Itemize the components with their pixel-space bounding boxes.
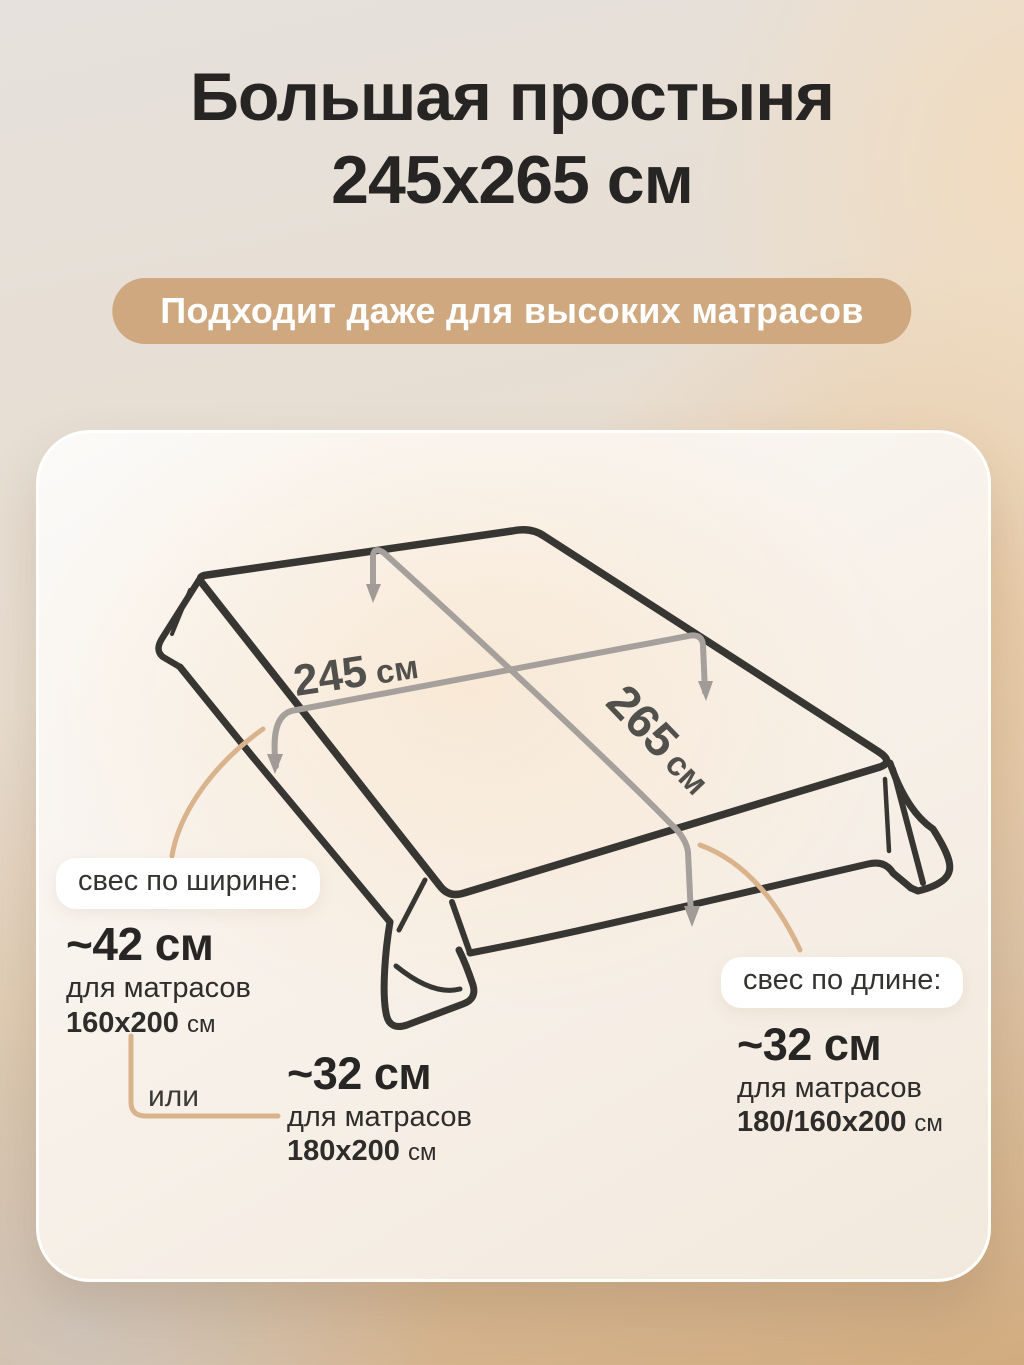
pill-width-overhang: свес по ширине: (56, 858, 320, 909)
width-overhang-alt-size: 180x200 см (287, 1136, 472, 1168)
diagram-card (36, 430, 991, 1282)
length-overhang-value: ~32 см (737, 1021, 943, 1070)
width-overhang-for: для матрасов (66, 973, 251, 1005)
infographic-page: Большая простыня 245x265 см Подходит даж… (0, 0, 1024, 1365)
width-overhang-value: ~42 см (66, 920, 251, 970)
subtitle-badge: Подходит даже для высоких матрасов (112, 278, 911, 344)
or-label: или (148, 1080, 199, 1114)
page-title: Большая простыня 245x265 см (0, 56, 1024, 222)
mattress-size-unit: см (408, 1139, 437, 1166)
mattress-size: 160x200 (66, 1007, 179, 1039)
width-overhang-alt-for: для матрасов (287, 1102, 472, 1134)
mattress-size-unit: см (914, 1110, 943, 1137)
width-overhang-size: 160x200 см (66, 1008, 251, 1040)
length-overhang-size: 180/160x200 см (737, 1107, 943, 1139)
length-overhang-for: для матрасов (737, 1073, 943, 1105)
title-line-1: Большая простыня (0, 56, 1024, 139)
title-line-2: 245x265 см (0, 139, 1024, 222)
mattress-size: 180x200 (287, 1135, 400, 1167)
mattress-size: 180/160x200 (737, 1106, 906, 1138)
width-overhang-alt-block: ~32 см для матрасов 180x200 см (287, 1050, 472, 1168)
width-overhang-block: ~42 см для матрасов 160x200 см (66, 920, 251, 1039)
width-overhang-alt-value: ~32 см (287, 1050, 472, 1099)
length-overhang-block: ~32 см для матрасов 180/160x200 см (737, 1021, 943, 1139)
pill-length-overhang: свес по длине: (721, 957, 963, 1008)
mattress-size-unit: см (187, 1011, 216, 1038)
